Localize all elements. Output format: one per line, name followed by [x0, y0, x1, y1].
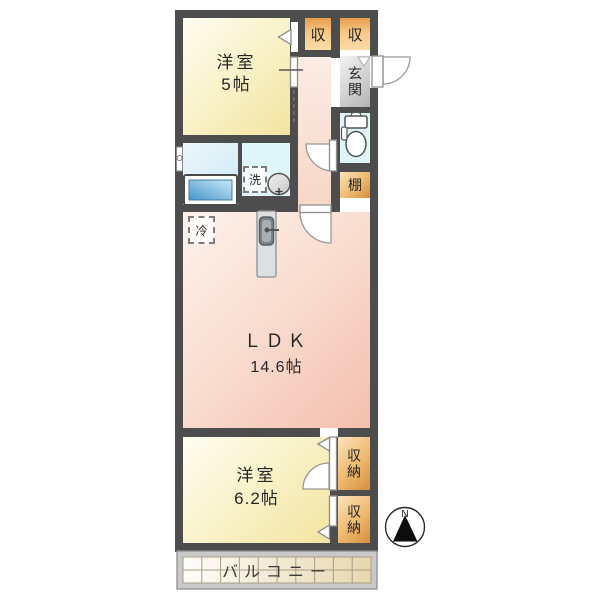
closet-top-right-label: 収	[340, 18, 370, 50]
washer-space: 洗	[243, 166, 267, 193]
bedroom1-size: 5帖	[221, 74, 251, 96]
wall-segment	[290, 143, 298, 212]
storage-upper-label: 収納	[338, 437, 370, 490]
entrance-step	[331, 58, 340, 107]
toilet-room	[340, 113, 370, 163]
bedroom1-label: 洋室 5帖	[183, 44, 290, 104]
ldk-size: 14.6帖	[250, 353, 302, 377]
wall-segment	[298, 18, 305, 50]
wall-segment	[175, 428, 370, 437]
entrance-label: 玄関	[340, 56, 370, 108]
wall-segment	[175, 10, 378, 18]
wall-segment	[175, 135, 298, 143]
washer-label: 洗	[249, 171, 261, 188]
bedroom2-name: 洋室	[237, 464, 277, 487]
wall-segment	[370, 10, 378, 552]
wall-segment	[175, 205, 242, 212]
front-door-opening	[370, 56, 378, 88]
wall-segment	[242, 196, 290, 212]
bedroom2-size: 6.2帖	[234, 487, 279, 510]
closet-top-left-label: 収	[305, 18, 331, 50]
ldk-name: ＬＤＫ	[244, 327, 310, 353]
fridge-space: 冷	[188, 216, 215, 244]
fridge-label: 冷	[195, 222, 207, 239]
shelf-label: 棚	[340, 172, 370, 198]
bedroom2-door-opening	[320, 428, 338, 437]
compass-needle	[393, 515, 418, 542]
wall-segment	[331, 163, 370, 172]
north-compass-icon: N	[386, 508, 425, 547]
bathroom	[183, 143, 238, 205]
closet-opening	[291, 22, 298, 52]
bedroom2-label: 洋室 6.2帖	[183, 461, 330, 513]
hallway	[298, 57, 331, 212]
balcony-label: バルコニー	[183, 556, 371, 583]
storage-lower-label: 収納	[338, 496, 370, 543]
compass-north-label: N	[401, 509, 408, 520]
ldk-room	[183, 212, 370, 428]
bedroom1-name: 洋室	[217, 52, 257, 74]
wall-segment	[175, 543, 378, 552]
ldk-label: ＬＤＫ 14.6帖	[183, 328, 370, 376]
wall-segment	[175, 10, 183, 552]
wall-segment	[298, 50, 331, 57]
floor-plan: N 洗 冷 洋室 5帖 収 収 玄関 棚 ＬＤＫ 14.6帖 洋室 6.2帖 収…	[0, 0, 600, 600]
